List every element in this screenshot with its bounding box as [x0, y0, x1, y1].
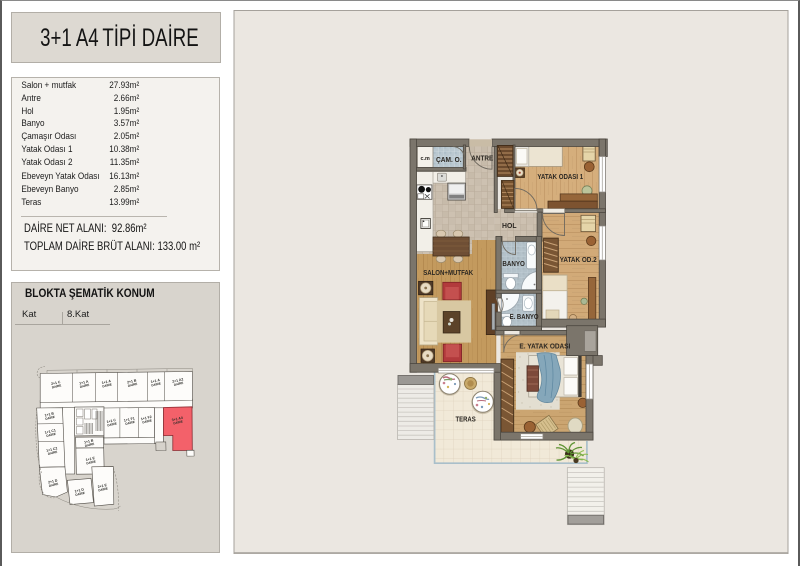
svg-text:ÇAM. O.: ÇAM. O. — [436, 155, 462, 164]
svg-text:YATAK ODASI 1: YATAK ODASI 1 — [537, 174, 583, 181]
svg-text:YATAK OD.2: YATAK OD.2 — [560, 257, 597, 264]
svg-text:TERAS: TERAS — [455, 414, 475, 423]
svg-text:c.m: c.m — [421, 156, 430, 162]
svg-text:HOL: HOL — [502, 221, 517, 230]
svg-text:ANTRE: ANTRE — [471, 153, 493, 162]
svg-text:E. YATAK ODASI: E. YATAK ODASI — [519, 341, 570, 350]
svg-text:E. BANYO: E. BANYO — [510, 314, 539, 321]
svg-text:SALON+MUTFAK: SALON+MUTFAK — [423, 268, 474, 277]
svg-text:BANYO: BANYO — [502, 259, 525, 268]
